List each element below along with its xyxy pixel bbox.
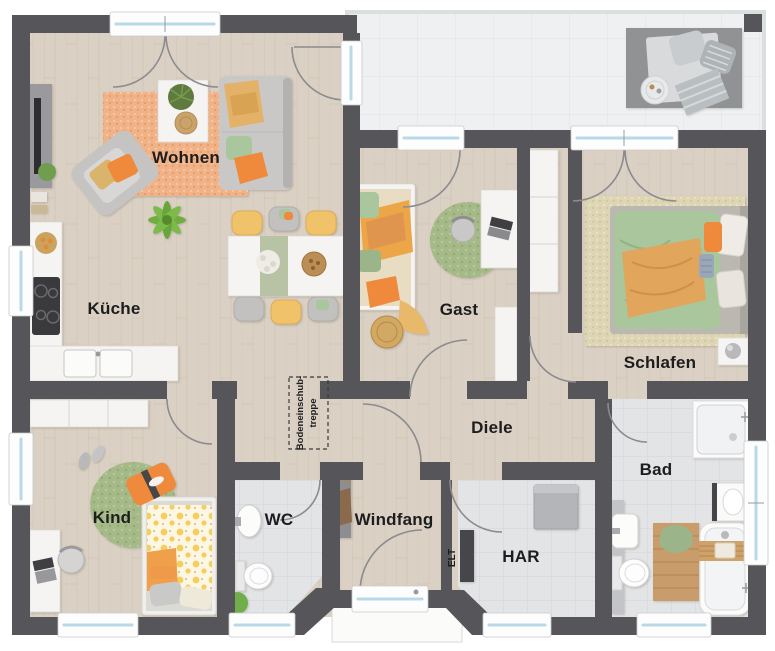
window-bad-right	[744, 441, 768, 565]
dining-table	[228, 207, 344, 324]
window-kid-left	[9, 433, 33, 505]
window-living-side-door	[341, 41, 362, 105]
label-wohnen: Wohnen	[152, 148, 220, 167]
label-windfang: Windfang	[355, 510, 434, 529]
elt-cabinet	[460, 530, 474, 582]
terrace-post	[744, 14, 762, 32]
coffee-table	[158, 80, 208, 142]
label-schlafen: Schlafen	[624, 353, 696, 372]
bath-mat	[653, 523, 699, 601]
window-guest-terrace-door	[398, 126, 464, 150]
label-har: HAR	[502, 547, 539, 566]
guest-chair	[451, 217, 475, 242]
floor-plan-drawing: Bodeneinschub- treppe ELT Wohnen Küche G…	[0, 0, 775, 651]
guest-desk	[481, 190, 519, 268]
label-wc: WC	[265, 510, 294, 529]
wc-toilet	[236, 561, 272, 591]
label-diele: Diele	[471, 418, 513, 437]
sofa	[219, 76, 292, 190]
window-wc-bottom	[229, 613, 295, 637]
window-har-bottom	[483, 613, 551, 637]
label-kind: Kind	[93, 508, 132, 527]
attic-stair-label-line1: Bodeneinschub-	[295, 376, 306, 450]
guest-wardrobe	[495, 307, 517, 381]
entrance-door	[352, 586, 428, 612]
hall-wardrobe	[528, 150, 558, 292]
floor-plan-page: Bodeneinschub- treppe ELT Wohnen Küche G…	[0, 0, 775, 651]
bad-wall-sink	[612, 514, 638, 548]
washing-machine	[534, 485, 578, 529]
label-bad: Bad	[640, 460, 673, 479]
nightstand	[718, 338, 748, 365]
attic-stair-label-line2: treppe	[308, 398, 319, 427]
label-gast: Gast	[440, 300, 479, 319]
palm-plant	[148, 201, 186, 239]
window-living-french-door	[110, 12, 220, 36]
shower	[693, 401, 749, 458]
window-bad-bottom	[637, 613, 711, 637]
kid-wardrobe	[30, 400, 148, 427]
double-bed	[610, 206, 752, 334]
terrace-lounge	[626, 28, 742, 115]
window-kid-bottom	[58, 613, 138, 637]
window-bedroom-terrace-door	[571, 126, 678, 150]
label-kueche: Küche	[88, 299, 141, 318]
window-kitchen	[9, 246, 33, 316]
elt-label: ELT	[447, 549, 458, 567]
bath-sink	[712, 483, 748, 521]
